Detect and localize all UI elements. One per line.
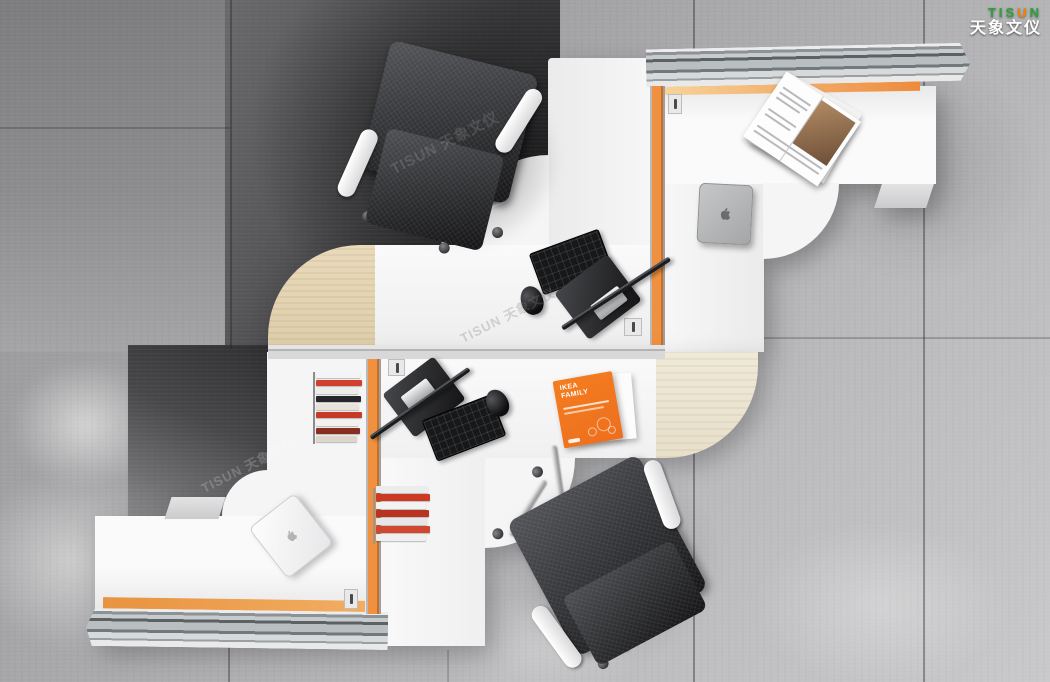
cable-grommet [624, 318, 642, 336]
brand-latin-suffix: N [1030, 5, 1042, 20]
magazine-edge [316, 404, 359, 410]
red-folder-edge [376, 526, 430, 533]
brochure-floral-doodle [587, 427, 597, 437]
apple-logo-icon [719, 207, 732, 222]
red-folder-edge [376, 494, 430, 501]
tray-wire [373, 488, 375, 544]
rack-wire [313, 372, 315, 444]
apple-logo-icon [283, 527, 300, 544]
brochure-logo-pill [568, 438, 581, 444]
magazine-edge [316, 436, 357, 442]
brand-logo: TISUN 天象文仪 [970, 6, 1042, 38]
magazine-edge [316, 428, 360, 434]
magazine-rack [316, 372, 364, 444]
magazine-edge [316, 412, 362, 418]
cable-grommet [344, 589, 358, 609]
brand-latin-accent: U [1017, 5, 1029, 20]
tray-edge [376, 502, 426, 509]
magazine-edge [316, 420, 358, 426]
office-desk-top-view-scene: IKEA FAMILY TISUN 天象文仪 TISUN 天象文仪 TISUN … [0, 0, 1050, 682]
cable-grommet [668, 94, 682, 114]
chair-caster [490, 526, 505, 541]
divider-rail-bottom [366, 352, 381, 614]
cable-grommet [388, 359, 405, 376]
divider-rail-top [650, 86, 665, 352]
screen-rail-top [646, 43, 971, 88]
document-trays [376, 486, 432, 546]
red-folder-edge [376, 510, 429, 517]
brochure-group: IKEA FAMILY [552, 364, 644, 455]
brand-logo-chinese: 天象文仪 [970, 20, 1042, 38]
brand-latin-prefix: TIS [988, 5, 1017, 20]
desk-junction-edge [268, 345, 665, 359]
brochure-title: IKEA FAMILY [559, 381, 589, 402]
brand-logo-latin: TISUN [970, 6, 1042, 20]
tray-edge [376, 534, 426, 541]
brochure-floral-doodle [607, 425, 616, 434]
tray-edge [376, 486, 428, 493]
screen-rail-bottom [86, 608, 389, 650]
tray-edge [376, 518, 427, 525]
brochure-cover: IKEA FAMILY [553, 371, 624, 448]
chair-caster [491, 226, 504, 239]
magazine-edge [316, 380, 362, 386]
tablet-gray [696, 183, 753, 246]
magazine-edge [316, 372, 360, 378]
magazine-edge [316, 388, 358, 394]
magazine-edge [316, 396, 361, 402]
